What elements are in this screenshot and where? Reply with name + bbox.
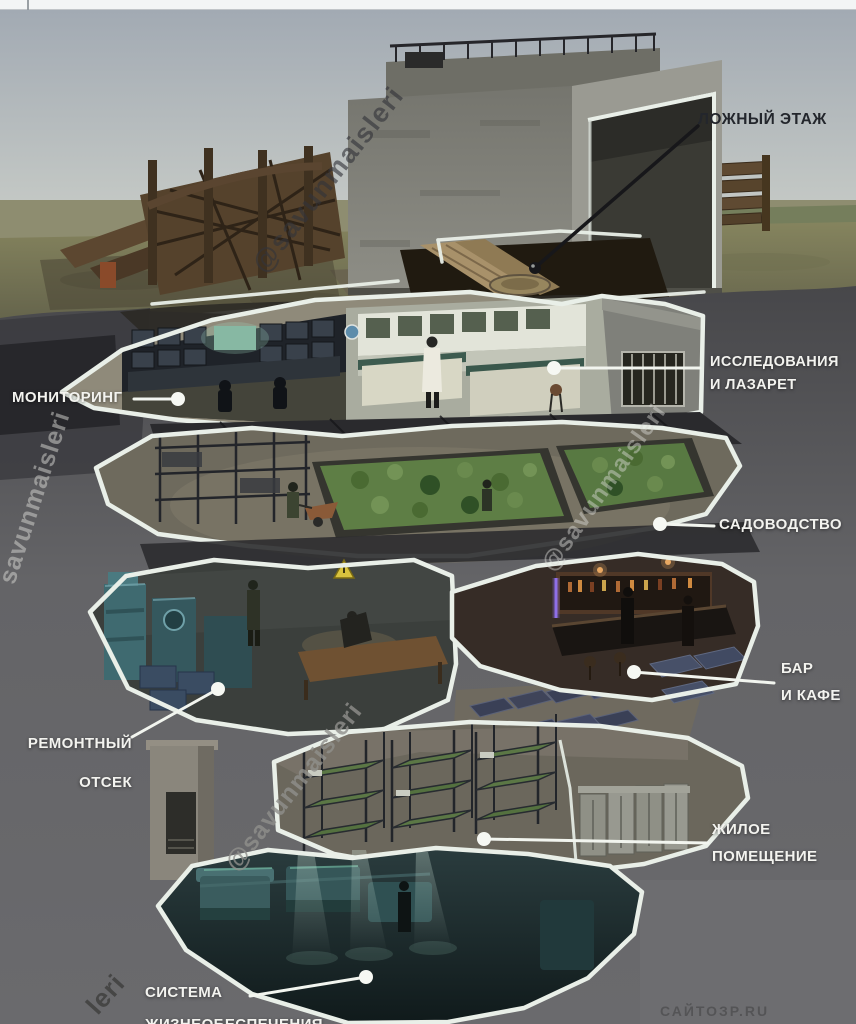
callout-repair-line1: РЕМОНТНЫЙ xyxy=(20,724,132,763)
watermark-corner: САЙТОЗР.RU xyxy=(660,1002,769,1019)
callout-research-line1: ИССЛЕДОВАНИЯ xyxy=(710,351,839,374)
callout-system-line2-partial: ЖИЗНЕОБЕСПЕЧЕНИЯ xyxy=(145,1016,323,1024)
callout-life-support-clipped-line: ЖИЗНЕОБЕСПЕЧЕНИЯ xyxy=(145,1016,323,1024)
callout-research-infirmary: ИССЛЕДОВАНИЯ И ЛАЗАРЕТ xyxy=(710,351,839,397)
callout-gardening: САДОВОДСТВО xyxy=(719,516,842,533)
bunker-cutaway-illustration: @savunmaisleri savunmaisleri @savunmaisl… xyxy=(0,0,856,1024)
callout-research-line2: И ЛАЗАРЕТ xyxy=(710,374,839,397)
callout-living-line1: ЖИЛОЕ xyxy=(712,816,817,843)
bunker-cutaway-poster: @savunmaisleri savunmaisleri @savunmaisl… xyxy=(0,0,856,1024)
callout-bar-cafe: БАР И КАФЕ xyxy=(781,655,841,709)
callout-bar-line2: И КАФЕ xyxy=(781,682,841,709)
callout-false-floor-text: ЛОЖНЫЙ ЭТАЖ xyxy=(698,111,827,128)
callout-gardening-text: САДОВОДСТВО xyxy=(719,516,842,533)
callout-repair-line2: ОТСЕК xyxy=(20,763,132,802)
garden-bed-large xyxy=(312,448,574,538)
callout-repair-bay: РЕМОНТНЫЙ ОТСЕК xyxy=(20,724,132,802)
lockers xyxy=(578,784,690,856)
callout-living-line2: ПОМЕЩЕНИЕ xyxy=(712,843,817,870)
top-border-strip xyxy=(0,0,856,10)
callout-false-floor: ЛОЖНЫЙ ЭТАЖ xyxy=(698,111,827,129)
callout-system-line1: СИСТЕМА xyxy=(145,984,222,1001)
callout-living-quarters: ЖИЛОЕ ПОМЕЩЕНИЕ xyxy=(712,816,817,870)
callout-bar-line1: БАР xyxy=(781,655,841,682)
gardener-figure-2 xyxy=(482,480,492,512)
concrete-pillar xyxy=(146,740,218,880)
callout-monitoring: МОНИТОРИНГ xyxy=(12,389,122,406)
callout-life-support: СИСТЕМА xyxy=(145,984,222,1001)
callout-monitoring-text: МОНИТОРИНГ xyxy=(12,389,122,406)
